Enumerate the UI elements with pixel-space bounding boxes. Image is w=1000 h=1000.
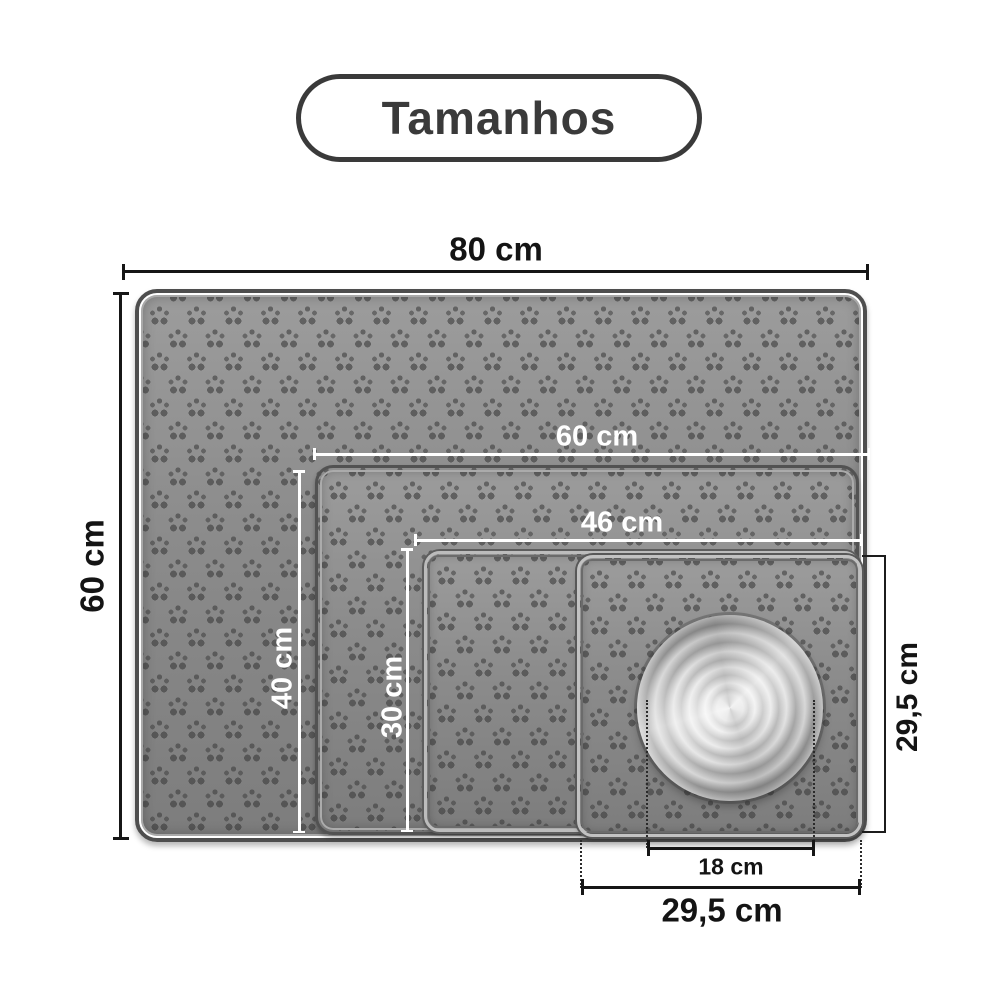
dim-label-mat4-width: 29,5 cm: [661, 894, 782, 927]
dim-line-mat2-width: [313, 453, 870, 456]
title-badge: Tamanhos: [296, 74, 702, 162]
dim-label-mat1-height: 60 cm: [76, 519, 109, 613]
dim-label-mat3-width: 46 cm: [581, 509, 663, 538]
dim-label-mat1-width: 80 cm: [449, 233, 543, 266]
dim-line-mat1-height: [119, 292, 122, 840]
dim-line-mat3-width: [414, 539, 862, 542]
page-title: Tamanhos: [382, 91, 617, 145]
dim-label-bowl-diameter: 18 cm: [698, 856, 763, 879]
pet-mat-size-diagram: Tamanhos 80 cm 60 cm 60 cm 46 cm 40 cm 3…: [0, 0, 1000, 1000]
dim-extension-bowl-left: [646, 700, 648, 848]
dim-label-mat3-height: 30 cm: [379, 656, 408, 738]
dim-line-mat4-width: [581, 886, 861, 889]
dim-line-bowl-diameter: [647, 847, 815, 850]
dim-line-mat1-width: [122, 270, 869, 273]
steel-bowl: [637, 615, 823, 801]
dim-bracket-mat4-height: [862, 555, 886, 833]
dim-label-mat2-width: 60 cm: [556, 423, 638, 452]
dim-label-mat4-height: 29,5 cm: [893, 642, 923, 752]
dim-extension-bowl-right: [813, 700, 815, 848]
dim-label-mat2-height: 40 cm: [269, 627, 298, 709]
